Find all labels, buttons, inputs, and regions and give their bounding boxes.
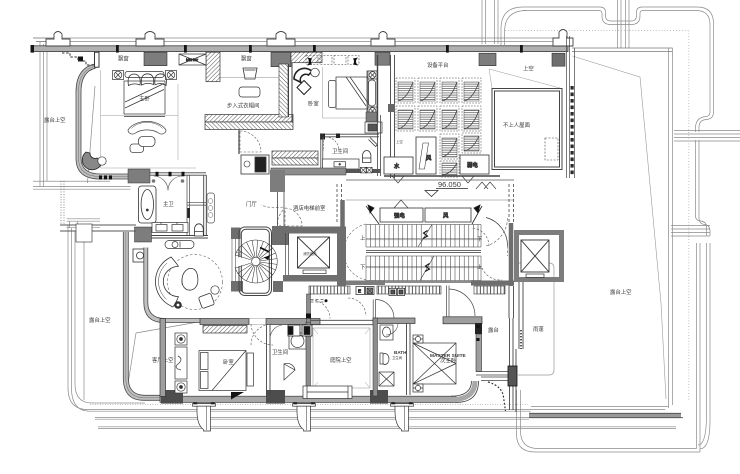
svg-text:上空: 上空: [396, 139, 403, 144]
svg-text:次主卧: 次主卧: [440, 357, 457, 365]
svg-text:上空: 上空: [523, 65, 534, 73]
svg-text:下: 下: [236, 252, 242, 259]
svg-text:卫生间: 卫生间: [392, 355, 403, 360]
svg-text:下: 下: [477, 236, 483, 243]
svg-text:步入式衣帽间: 步入式衣帽间: [227, 102, 259, 110]
svg-text:BATH: BATH: [394, 350, 407, 355]
svg-text:96.050: 96.050: [438, 180, 461, 189]
svg-text:主卧: 主卧: [139, 95, 150, 103]
svg-text:下: 下: [360, 264, 366, 271]
svg-text:E: E: [358, 289, 361, 294]
svg-text:弱电: 弱电: [467, 161, 478, 169]
svg-text:强电: 强电: [394, 212, 405, 220]
svg-text:Mini bar: Mini bar: [186, 58, 199, 62]
svg-text:风: 风: [443, 213, 449, 220]
svg-text:酒店电梯前室: 酒店电梯前室: [293, 204, 326, 212]
svg-text:上: 上: [360, 234, 366, 242]
svg-text:水: 水: [394, 162, 400, 170]
svg-text:门厅: 门厅: [246, 200, 257, 208]
svg-text:卧室: 卧室: [223, 358, 234, 366]
svg-text:上: 上: [477, 263, 483, 271]
svg-text:飘窗: 飘窗: [241, 55, 252, 63]
svg-text:消防电梯: 消防电梯: [303, 251, 317, 256]
svg-text:露台上空: 露台上空: [44, 116, 66, 124]
svg-text:卧室: 卧室: [308, 100, 319, 108]
svg-text:露台上空: 露台上空: [89, 316, 111, 324]
svg-text:不上人屋面: 不上人屋面: [503, 121, 531, 129]
svg-text:卫生间: 卫生间: [272, 348, 288, 356]
svg-text:飘窗: 飘窗: [118, 55, 129, 63]
svg-text:风: 风: [426, 155, 432, 162]
svg-text:雨蓬: 雨蓬: [533, 325, 544, 333]
svg-text:设备平台: 设备平台: [427, 61, 449, 69]
svg-text:露台: 露台: [488, 326, 499, 334]
svg-text:主卫: 主卫: [163, 200, 174, 208]
svg-text:露台上空: 露台上空: [610, 288, 632, 296]
svg-text:卫生间: 卫生间: [332, 147, 348, 155]
svg-text:庭院上空: 庭院上空: [330, 356, 352, 364]
